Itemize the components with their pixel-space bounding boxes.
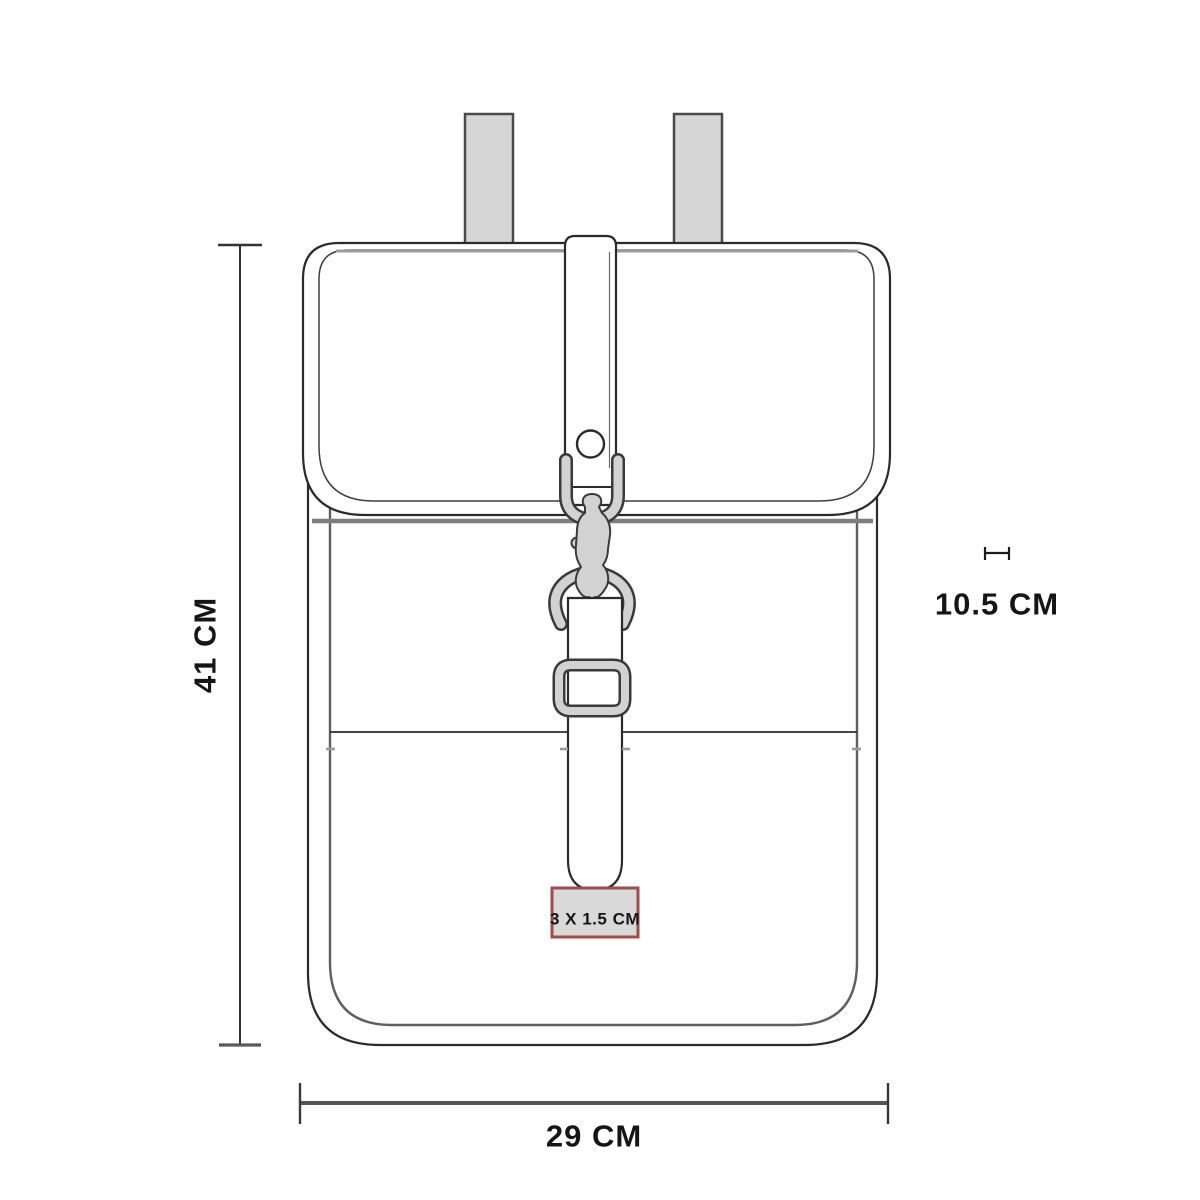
right-shoulder-strap (674, 114, 722, 254)
snap-button (577, 431, 604, 458)
strap-width-dimension: 10.5 CM (935, 547, 1059, 622)
height-dimension: 41 CM (188, 245, 263, 1045)
backpack-dimension-diagram: 3 X 1.5 CM 41 CM 29 CM 10.5 CM (0, 0, 1200, 1200)
shoulder-straps (465, 114, 722, 254)
diagram-canvas: 3 X 1.5 CM 41 CM 29 CM 10.5 CM (0, 0, 1200, 1200)
front-strap-outline (568, 598, 622, 890)
width-dimension-label: 29 CM (546, 1119, 642, 1154)
front-strap (559, 598, 625, 890)
left-shoulder-strap (465, 114, 513, 254)
patch-size-callout: 3 X 1.5 CM (550, 888, 640, 937)
patch-size-label: 3 X 1.5 CM (550, 910, 640, 929)
width-dimension: 29 CM (300, 1083, 888, 1154)
height-dimension-label: 41 CM (188, 597, 223, 693)
strap-width-dimension-label: 10.5 CM (935, 587, 1059, 622)
